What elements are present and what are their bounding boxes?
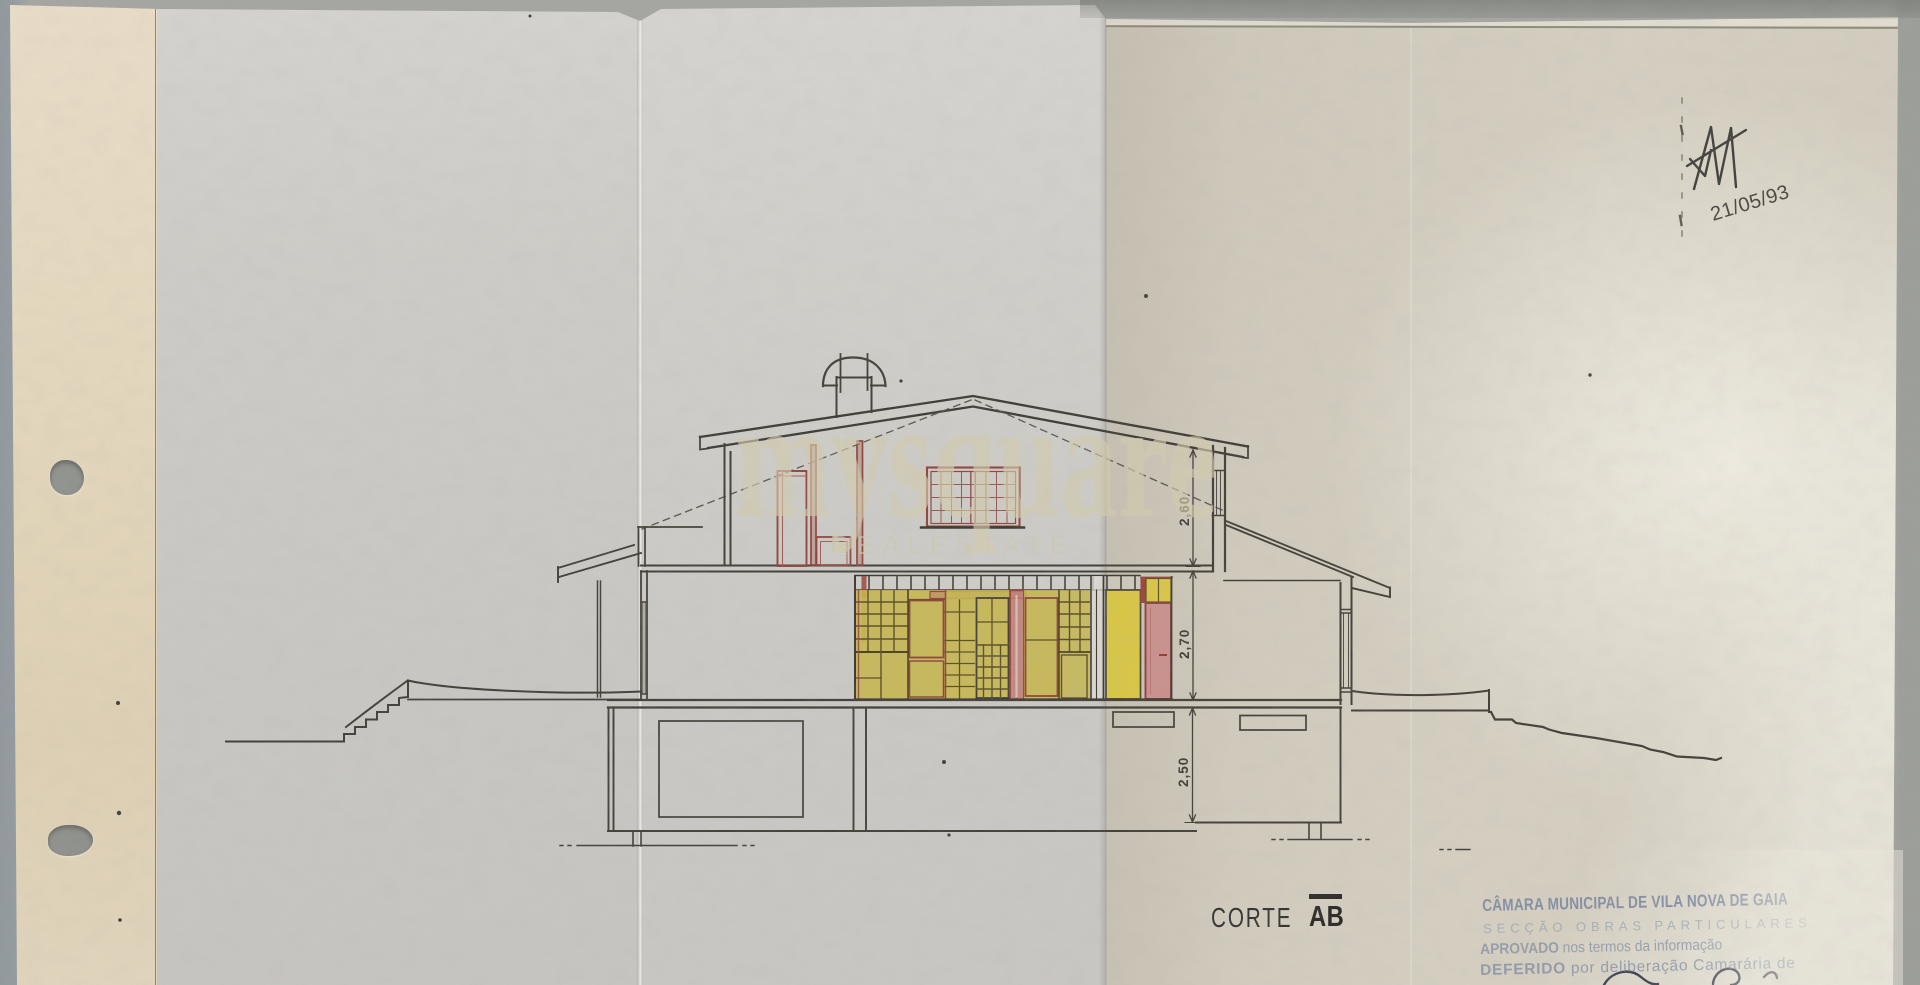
svg-text:2,70: 2,70 — [1177, 629, 1192, 659]
svg-text:21/05/93: 21/05/93 — [1708, 181, 1792, 226]
svg-text:2,50: 2,50 — [1176, 757, 1191, 787]
